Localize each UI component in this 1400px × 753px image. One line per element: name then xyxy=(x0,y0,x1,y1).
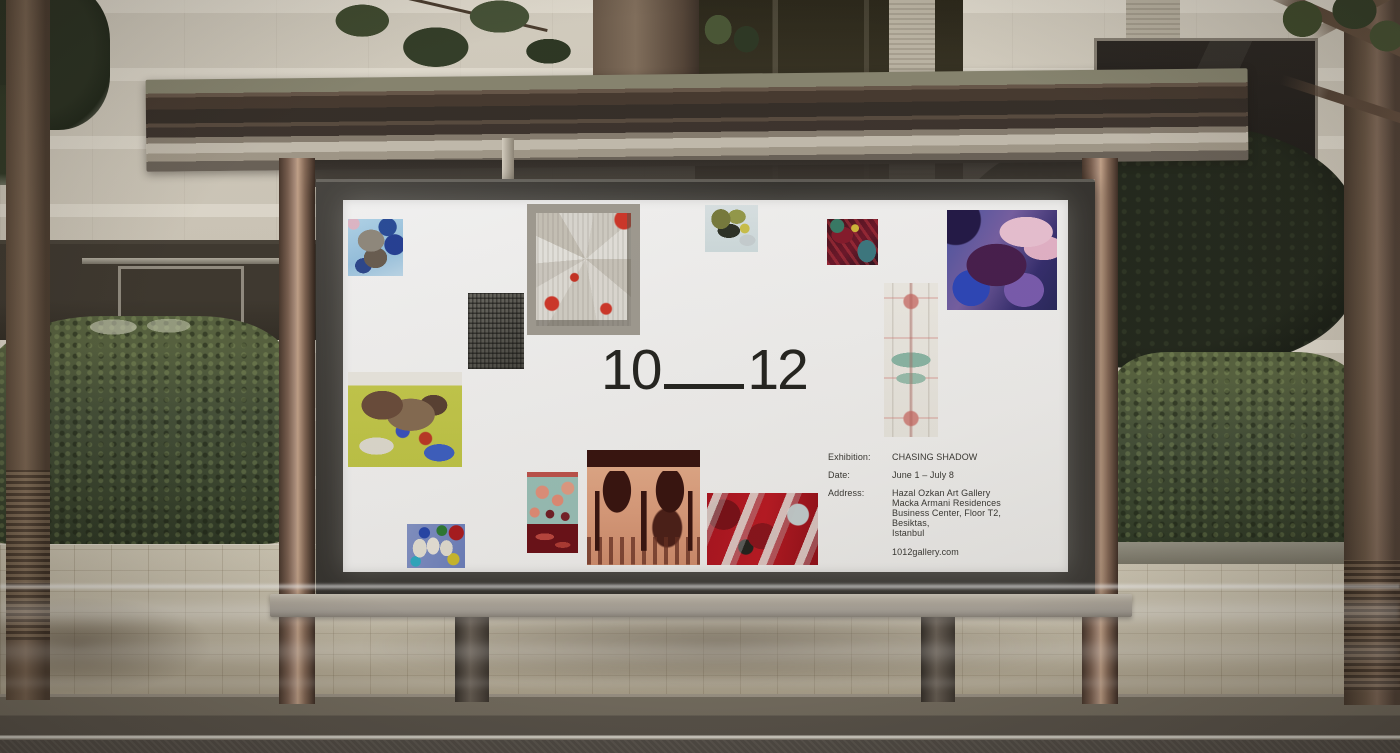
tree-trunk-left xyxy=(6,0,50,700)
artwork-thumbnail-4 xyxy=(827,219,878,265)
logo-underscore xyxy=(664,384,744,389)
billboard-base-ledge xyxy=(270,594,1132,617)
metal-railing xyxy=(82,258,284,264)
exhibition-value: CHASING SHADOW xyxy=(892,452,977,462)
street-curb xyxy=(0,694,1400,742)
address-line: Hazal Ozkan Art Gallery xyxy=(892,488,1028,498)
billboard: 1012 Exhibition: CHASING SHADOW Date: Ju… xyxy=(316,179,1095,596)
gallery-website: 1012gallery.com xyxy=(892,547,1028,557)
exhibition-row: Exhibition: CHASING SHADOW xyxy=(828,452,1028,462)
tree-foliage xyxy=(696,4,770,68)
address-value: Hazal Ozkan Art Gallery Macka Armani Res… xyxy=(892,488,1028,538)
road-asphalt xyxy=(0,740,1400,753)
address-line: Macka Armani Residences xyxy=(892,498,1028,508)
artwork-thumbnail-6 xyxy=(468,293,524,369)
hedge xyxy=(1114,352,1358,550)
date-row: Date: June 1 – July 8 xyxy=(828,470,1028,480)
billboard-leg-right xyxy=(921,614,955,702)
exhibition-info: Exhibition: CHASING SHADOW Date: June 1 … xyxy=(828,452,1028,557)
artwork-thumbnail-12 xyxy=(407,524,465,568)
address-label: Address: xyxy=(828,488,892,538)
artwork-thumbnail-1 xyxy=(348,219,403,276)
artwork-thumbnail-10 xyxy=(587,450,700,565)
artwork-thumbnail-2 xyxy=(527,204,640,335)
logo-left-numeral: 10 xyxy=(601,338,660,402)
artwork-thumbnail-11 xyxy=(707,493,818,565)
tree-foliage xyxy=(1270,0,1400,70)
tree-trunk xyxy=(593,0,699,84)
artwork-thumbnail-7 xyxy=(348,372,462,467)
address-line: Istanbul xyxy=(892,528,1028,538)
gallery-logo: 1012 xyxy=(601,342,807,400)
address-row: Address: Hazal Ozkan Art Gallery Macka A… xyxy=(828,488,1028,538)
shelter-column-left xyxy=(279,158,315,704)
exhibition-label: Exhibition: xyxy=(828,452,892,462)
artwork-thumbnail-5 xyxy=(947,210,1057,310)
date-label: Date: xyxy=(828,470,892,480)
date-value: June 1 – July 8 xyxy=(892,470,954,480)
artwork-thumbnail-8 xyxy=(884,283,938,437)
artwork-thumbnail-3 xyxy=(705,205,758,252)
billboard-leg-left xyxy=(455,614,489,702)
exhibition-poster: 1012 Exhibition: CHASING SHADOW Date: Ju… xyxy=(343,200,1068,572)
address-line: Business Center, Floor T2, Besiktas, xyxy=(892,508,1028,528)
shelter-roof xyxy=(146,68,1249,172)
logo-right-numeral: 12 xyxy=(747,338,806,402)
tree-foliage xyxy=(328,0,573,90)
bus-stop-scene: 1012 Exhibition: CHASING SHADOW Date: Ju… xyxy=(0,0,1400,753)
artwork-thumbnail-9 xyxy=(527,472,578,553)
